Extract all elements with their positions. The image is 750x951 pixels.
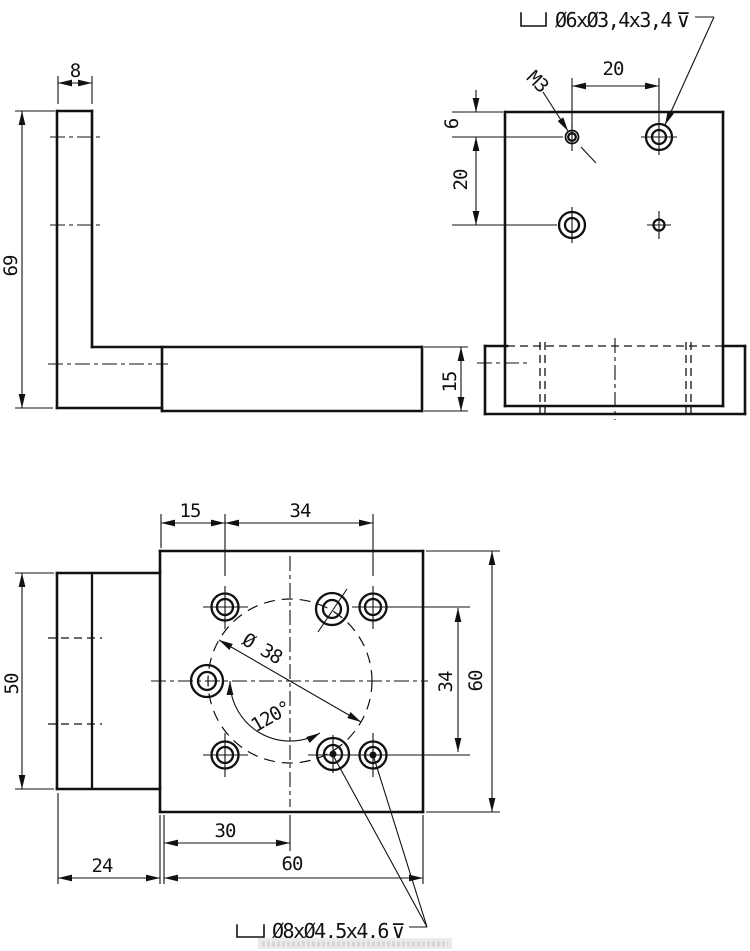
front-view-hidden-lines [477,338,723,420]
counterbore-hole-bottom-left [559,207,585,243]
counterbore-hole-tl [203,586,248,629]
thread-callout: M3 [522,67,596,163]
thread-label: M3 [522,67,553,98]
dim-row-spacing: 20 [450,137,557,225]
side-view-outline [57,111,422,411]
dim-base-height-label: 15 [439,372,461,393]
dim-col-spacing: 20 [572,58,659,128]
drawing-sheet: 8 69 15 [0,0,750,951]
dim-top-offset-label: 6 [441,118,463,129]
front-view: 20 6 20 M3 Ø6xØ3,4x3,4 ⊽ [441,8,745,420]
dim-hole-angle-label: 120° [247,697,294,737]
dim-edge-offset: 15 [161,500,373,576]
engineering-drawing: 8 69 15 [0,0,750,951]
plan-view-centerlines [151,556,428,807]
dim-hole-spacing-top: 34 [225,500,373,523]
counterbore-hole-bl [203,733,248,777]
dim-row-spacing-label: 20 [450,169,472,190]
counterbore-hole-top-right [641,119,677,155]
drill-hole-bottom-right [647,211,671,239]
dim-edge-offset-label: 15 [180,500,201,522]
dim-thickness: 8 [58,60,92,104]
watermark [258,938,452,949]
dim-plate-size-bottom-label: 60 [282,853,303,875]
dim-flange-depth: 24 [58,793,160,884]
side-view-centerlines [48,137,168,364]
counterbore-callout-bottom: Ø8xØ4,5x4,6 ⊽ [237,757,427,943]
dim-hole-spacing-right-label: 34 [435,671,457,692]
dim-height: 69 [0,111,55,408]
plan-view: 15 34 50 34 60 30 [1,500,500,949]
dim-thickness-label: 8 [70,60,81,82]
counterbore-hole-tr [352,586,470,629]
dim-height-label: 69 [0,255,22,276]
bolt-circle-hole-top [316,589,348,632]
bolt-circle-hole-bottom [317,735,349,773]
depth-symbol-top: ⊽ [676,8,691,32]
dim-flange-width-label: 50 [1,673,23,694]
dim-flange-depth-label: 24 [92,855,113,877]
dim-half-width-label: 30 [215,820,236,842]
dim-col-spacing-label: 20 [603,58,624,80]
side-view: 8 69 15 [0,60,468,411]
counterbore-icon [237,925,264,937]
dim-top-offset: 6 [441,90,563,137]
dim-bolt-circle-label: Ø 38 [238,629,286,669]
dim-hole-spacing-top-label: 34 [290,500,311,522]
dim-base-height: 15 [424,347,468,411]
dim-plate-size-right-label: 60 [465,670,487,691]
counterbore-icon [521,13,546,26]
dim-flange-width: 50 [1,573,54,789]
dim-hole-spacing-right: 34 [435,608,458,752]
dim-half-width: 30 [164,815,290,851]
counterbore-note-top: Ø6xØ3,4x3,4 [555,8,672,32]
